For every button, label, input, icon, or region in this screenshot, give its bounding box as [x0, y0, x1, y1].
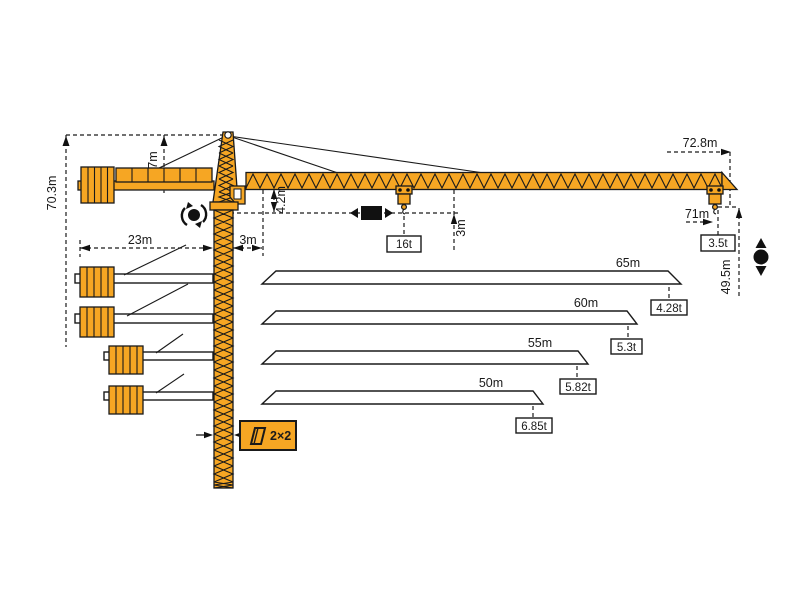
cab-window: [234, 189, 241, 199]
jib-root-label: 3m: [239, 233, 256, 247]
hook-height-label: 49.5m: [719, 260, 733, 295]
counterweight-slabs: [81, 167, 114, 203]
max-radius-label: 72.8m: [683, 136, 718, 150]
tower-head-label: 7m: [146, 151, 160, 168]
trolley-tip: [707, 186, 723, 214]
trolley-wheel-icon: [406, 188, 410, 192]
jib-profile-65m: 65m 4.28t: [262, 256, 687, 315]
hook-drop-label: 3m: [454, 219, 468, 236]
jib-tie-bar-short: [229, 136, 338, 173]
hook-block: [402, 205, 407, 210]
jib-tie-bar-long: [229, 136, 484, 173]
tower-apex-pin: [225, 132, 231, 138]
slewing-rotation-icon: [182, 202, 206, 228]
hook-travel-icon: [754, 238, 769, 276]
leader-line: [124, 245, 186, 275]
slewing-platform: [210, 202, 238, 210]
max-load-value: 16t: [396, 239, 413, 251]
trolley-travel-icon: [350, 206, 393, 220]
jib-profile-50m: 50m 6.85t: [262, 376, 552, 433]
leader-line: [156, 334, 183, 353]
tip-load-value: 3.5t: [708, 238, 728, 250]
tip-load-value: 5.3t: [617, 342, 637, 354]
counter-jib-tie-bar: [157, 135, 228, 169]
trolley-wheel-icon: [717, 188, 721, 192]
total-height-label: 70.3m: [45, 176, 59, 211]
jib-profile-60m: 60m 5.3t: [262, 296, 642, 354]
tip-load-value: 4.28t: [656, 303, 682, 315]
leader-line: [156, 374, 184, 393]
counterweight-config-row: [104, 334, 213, 374]
tip-load-value: 6.85t: [521, 421, 547, 433]
motion-symbols: [182, 202, 769, 276]
trolley-max-load: [396, 186, 412, 214]
trolley-wheel-icon: [398, 188, 402, 192]
hook-block: [713, 205, 718, 210]
under-jib-label: 4.2m: [274, 186, 288, 214]
reeving-label: 2×2: [270, 429, 291, 443]
trolley-wheel-icon: [709, 188, 713, 192]
jib-length-label: 60m: [574, 296, 598, 310]
jib-length-label: 55m: [528, 336, 552, 350]
jib-length-label: 50m: [479, 376, 503, 390]
leader-line: [127, 284, 188, 316]
tip-radius-label: 71m: [685, 207, 709, 221]
counterweight-config-row: [75, 245, 213, 297]
crane-diagram-svg: 65m 4.28t 60m 5.3t 55m 5.82t 50m 6.85t 1…: [0, 0, 800, 600]
tip-load-value: 5.82t: [565, 382, 591, 394]
crane-diagram: 65m 4.28t 60m 5.3t 55m 5.82t 50m 6.85t 1…: [0, 0, 800, 600]
jib-length-profiles: 65m 4.28t 60m 5.3t 55m 5.82t 50m 6.85t: [262, 256, 687, 433]
load-boxes: 16t 3.5t: [387, 235, 735, 252]
counterweight-configs: [75, 245, 213, 414]
counterweight-config-row: [104, 374, 213, 414]
counter-jib-label: 23m: [128, 233, 152, 247]
crane-structure: [78, 132, 737, 488]
reeving-box: 2×2: [240, 421, 296, 450]
jib-profile-55m: 55m 5.82t: [262, 336, 596, 394]
jib-length-label: 65m: [616, 256, 640, 270]
